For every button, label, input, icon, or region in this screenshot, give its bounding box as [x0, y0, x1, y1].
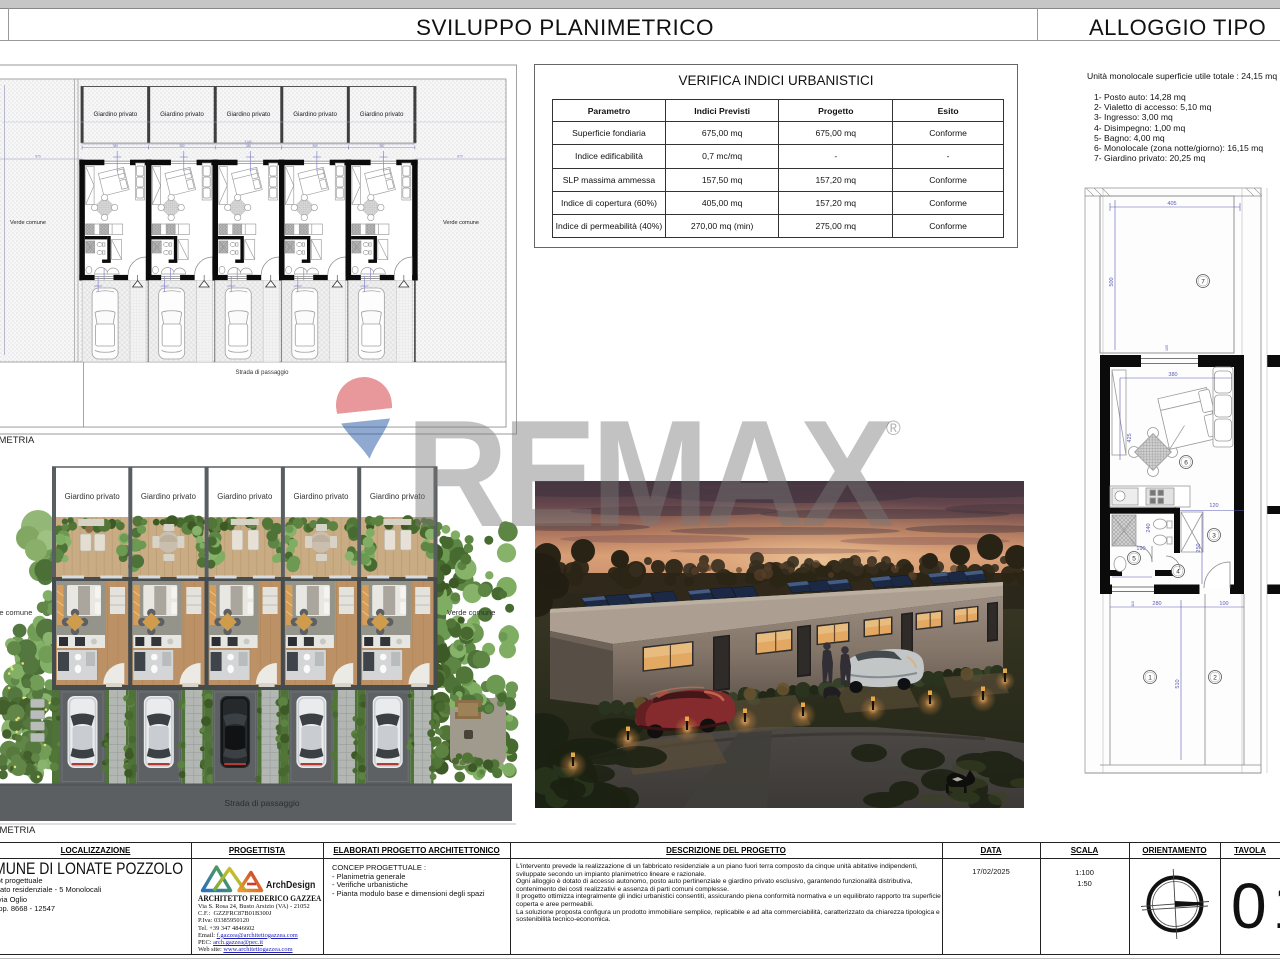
svg-text:380: 380 [379, 144, 385, 148]
svg-text:380: 380 [113, 144, 119, 148]
svg-text:280: 280 [1152, 601, 1161, 607]
svg-text:425: 425 [1127, 433, 1133, 442]
svg-text:4: 4 [1176, 569, 1180, 576]
svg-text:380: 380 [179, 144, 185, 148]
svg-text:Giardino privato: Giardino privato [141, 492, 197, 501]
svg-text:870: 870 [457, 155, 463, 159]
svg-text:Giardino privato: Giardino privato [65, 492, 121, 501]
svg-text:105: 105 [1165, 345, 1169, 351]
svg-text:380: 380 [1168, 372, 1177, 378]
svg-text:190: 190 [1136, 546, 1145, 552]
svg-text:500: 500 [1109, 277, 1115, 286]
svg-text:3: 3 [1212, 533, 1216, 540]
svg-text:100: 100 [1219, 601, 1228, 607]
svg-text:Verde comune: Verde comune [0, 608, 32, 617]
svg-text:Strada di passaggio: Strada di passaggio [235, 370, 289, 376]
svg-text:5: 5 [1132, 556, 1136, 563]
svg-text:Giardino privato: Giardino privato [94, 111, 138, 118]
svg-text:870: 870 [35, 155, 41, 159]
svg-text:380: 380 [312, 144, 318, 148]
svg-text:Strada di passaggio: Strada di passaggio [224, 798, 299, 808]
svg-text:Verde comune: Verde comune [447, 608, 495, 617]
svg-text:1: 1 [1148, 675, 1152, 682]
svg-text:6: 6 [1184, 460, 1188, 467]
svg-text:250: 250 [1196, 543, 1202, 552]
svg-text:Verde comune: Verde comune [443, 220, 479, 226]
svg-text:Giardino privato: Giardino privato [160, 111, 204, 118]
svg-text:Giardino privato: Giardino privato [360, 111, 404, 118]
svg-text:120: 120 [1209, 503, 1218, 509]
svg-text:2: 2 [1213, 675, 1217, 682]
svg-text:Verde comune: Verde comune [10, 220, 46, 226]
svg-text:240: 240 [1146, 523, 1152, 532]
svg-text:110: 110 [1131, 601, 1135, 607]
svg-text:510: 510 [1175, 679, 1181, 688]
svg-text:405: 405 [1167, 201, 1176, 207]
svg-text:Giardino privato: Giardino privato [293, 111, 337, 118]
svg-text:Giardino privato: Giardino privato [217, 492, 273, 501]
svg-text:380: 380 [246, 144, 252, 148]
svg-text:Giardino privato: Giardino privato [293, 492, 349, 501]
svg-text:Giardino privato: Giardino privato [227, 111, 271, 118]
svg-text:7: 7 [1201, 279, 1205, 286]
